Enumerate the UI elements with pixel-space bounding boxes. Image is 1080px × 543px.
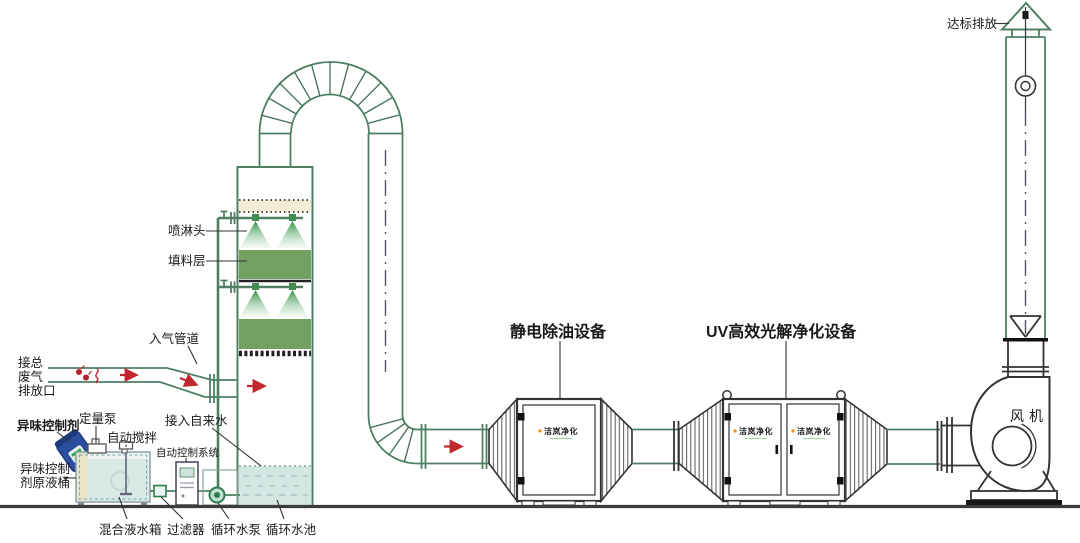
brand-logo: 洁岚净化	[544, 426, 578, 436]
esp-unit: 洁岚净化	[489, 399, 632, 506]
chimney	[1002, 3, 1050, 338]
metering-pump-label: 定量泵	[79, 411, 117, 426]
duct-break-symbol	[96, 369, 98, 384]
mixing-tank-label: 混合液水箱	[99, 522, 162, 537]
esp-uv-connecting-duct	[632, 421, 679, 471]
centrifugal-fan: 风机	[941, 316, 1062, 506]
top-u-bend-duct	[260, 62, 403, 167]
control-cabinet	[176, 462, 198, 505]
flow-arrow	[180, 378, 196, 385]
uv-door-right	[787, 404, 839, 495]
brand-logo: 洁岚净化	[739, 426, 773, 436]
uv-title: UV高效光解净化设备	[706, 322, 857, 341]
emission-label: 达标排放	[947, 16, 998, 31]
spray-head-label: 喷淋头	[168, 224, 206, 238]
packing-layer-1	[239, 250, 311, 279]
waste-gas-label-2: 废气	[18, 369, 44, 384]
esp-title: 静电除油设备	[510, 322, 607, 341]
circulating-pump	[210, 488, 225, 503]
packing-layer-2	[239, 319, 311, 349]
uv-unit: 洁岚净化 洁岚净化	[679, 391, 887, 506]
waste-gas-label-3: 排放口	[18, 383, 56, 398]
uv-door-left	[729, 404, 781, 495]
fan-label: 风机	[1010, 408, 1048, 424]
filter	[154, 486, 166, 497]
metering-pump	[88, 439, 106, 453]
mixing-tank	[76, 452, 150, 507]
odor-agent-label: 异味控制剂	[17, 418, 80, 433]
barrel-label-1: 异味控制	[20, 462, 70, 476]
process-flow-diagram: 洁岚净化 洁岚净化 洁岚净化	[0, 0, 1080, 543]
circulating-water-pool	[239, 466, 311, 505]
control-system-label: 自动控制系统	[156, 446, 219, 459]
downcomer-duct	[369, 134, 490, 470]
inlet-pipe-label: 入气管道	[149, 331, 200, 346]
barrel-label-2: 剂原液桶	[20, 475, 70, 490]
circ-pump-label: 循环水泵	[211, 523, 261, 537]
demister-layer	[239, 200, 311, 212]
auto-stir-label: 自动搅拌	[107, 430, 158, 445]
brand-logo: 洁岚净化	[797, 426, 831, 436]
fan-inlet-eye	[993, 427, 1032, 466]
waste-gas-inlet-duct	[48, 366, 238, 404]
filter-label: 过滤器	[167, 523, 205, 537]
waste-gas-label-1: 接总	[18, 355, 43, 370]
packing-label: 填料层	[168, 254, 206, 268]
circ-pool-label: 循环水池	[266, 523, 317, 537]
spray-tower	[218, 167, 313, 506]
uv-fan-connecting-duct	[887, 421, 942, 471]
tap-water-label: 接入自来水	[165, 413, 228, 428]
